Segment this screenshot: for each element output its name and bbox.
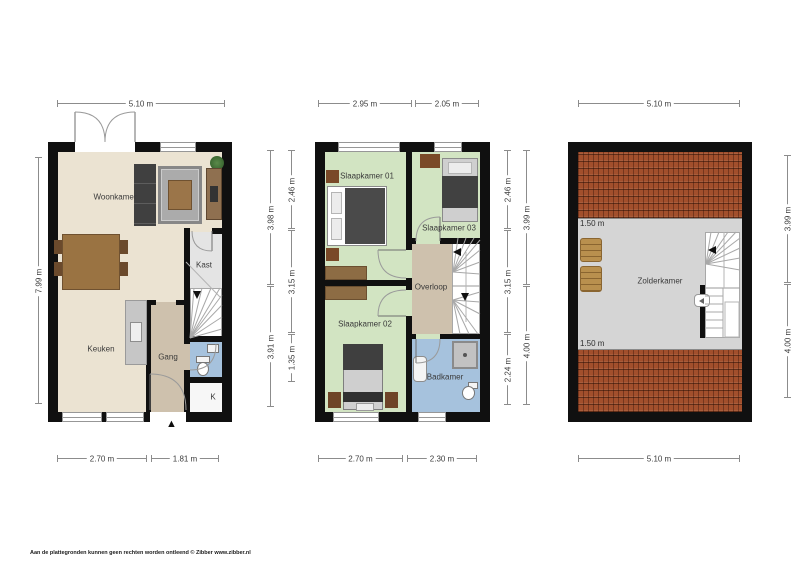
room-label-slaapkamer02: Slaapkamer 02 — [338, 320, 392, 329]
dimension-ground-bottom-left: 2.70 m — [57, 454, 147, 463]
room-label-overloop: Overloop — [415, 283, 447, 292]
dimension-first-left-outer-bottom: 3.91 m — [266, 286, 275, 407]
dimension-ground-top: 5.10 m — [57, 99, 225, 108]
dimension-first-bottom-right: 2.30 m — [407, 454, 477, 463]
dimension-attic-top: 5.10 m — [578, 99, 740, 108]
dimension-first-left-inner-middle: 3.15 m — [287, 230, 296, 333]
first-door-arcs-and-stairs — [315, 142, 490, 422]
dimension-first-left-inner-top: 2.46 m — [287, 150, 296, 229]
knee-height-label-bottom: 1.50 m — [580, 339, 604, 348]
room-label-meterkast: K — [210, 393, 215, 402]
dimension-attic-right-top: 3.99 m — [783, 155, 792, 283]
floorplan-sheet: Woonkamer Keuken Gang Kast K ▲ 5.10 m 7.… — [0, 0, 800, 566]
dimension-ground-left: 7.99 m — [34, 157, 43, 404]
room-label-gang: Gang — [158, 353, 178, 362]
room-label-slaapkamer01: Slaapkamer 01 — [340, 172, 394, 181]
ground-door-arcs-and-stairs — [48, 97, 232, 422]
dimension-first-right-inner-bottom: 2.24 m — [503, 334, 512, 405]
room-label-keuken: Keuken — [87, 345, 114, 354]
room-label-kast: Kast — [196, 261, 212, 270]
knee-height-label-top: 1.50 m — [580, 219, 604, 228]
room-label-zolderkamer: Zolderkamer — [638, 277, 683, 286]
dimension-first-right-inner-middle: 3.15 m — [503, 230, 512, 333]
dimension-first-top-left: 2.95 m — [318, 99, 412, 108]
dimension-ground-bottom-right: 1.81 m — [151, 454, 219, 463]
dimension-attic-bottom: 5.10 m — [578, 454, 740, 463]
dimension-attic-right-bottom: 4.00 m — [783, 284, 792, 398]
dimension-first-bottom-left: 2.70 m — [318, 454, 403, 463]
room-label-woonkamer: Woonkamer — [94, 193, 137, 202]
credit-text: Aan de plattegronden kunnen geen rechten… — [30, 550, 251, 556]
dimension-first-right-inner-top: 2.46 m — [503, 150, 512, 229]
dimension-first-top-right: 2.05 m — [415, 99, 479, 108]
dimension-first-right-outer-top: 3.99 m — [522, 150, 531, 285]
dimension-first-left-inner-bottom: 1.35 m — [287, 334, 296, 382]
dimension-first-left-outer-top: 3.98 m — [266, 150, 275, 285]
room-label-badkamer: Badkamer — [427, 373, 463, 382]
entrance-arrow-icon: ▲ — [166, 419, 177, 430]
dimension-first-right-outer-bottom: 4.00 m — [522, 286, 531, 405]
room-label-slaapkamer03: Slaapkamer 03 — [422, 224, 476, 233]
